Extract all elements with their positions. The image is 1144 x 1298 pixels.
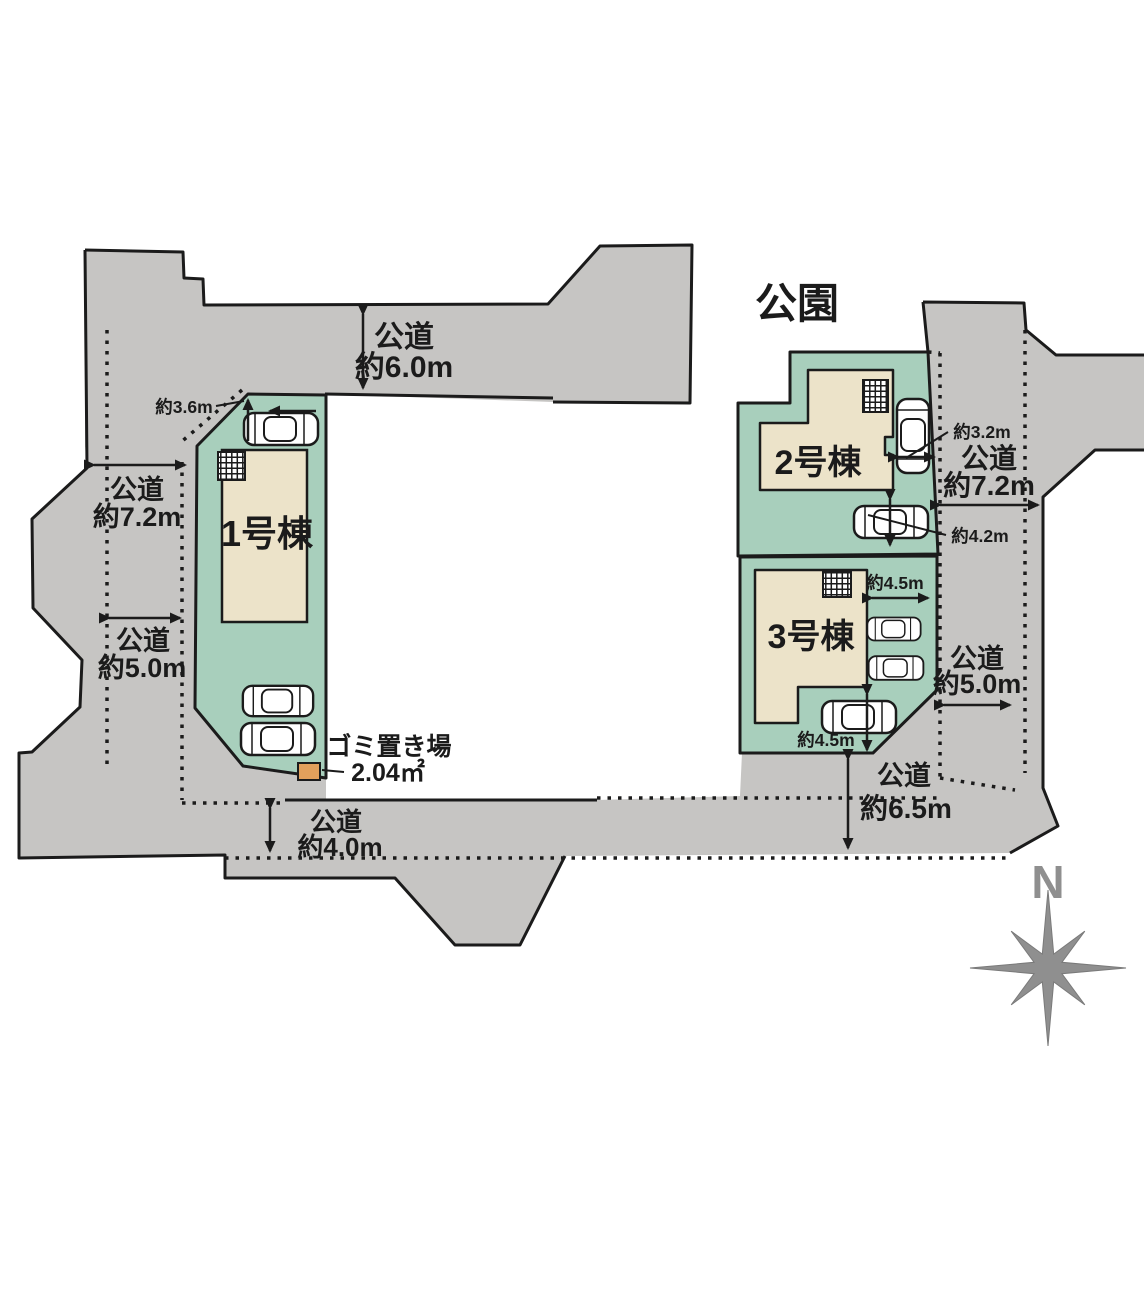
- lot3-parking-width-bottom-dim: 約4.5m: [797, 730, 854, 750]
- road-bottom-right-width: 約6.5m: [860, 792, 952, 824]
- road-left-lower-width: 約5.0m: [98, 652, 187, 683]
- garbage-area: 2.04㎡: [351, 758, 425, 787]
- road-right-lower-width: 約5.0m: [933, 668, 1022, 699]
- road-top-width: 約6.0m: [355, 351, 453, 384]
- lot1-frontage-dim: 約3.6m: [155, 397, 212, 417]
- road-bottom-width: 約4.0m: [297, 832, 382, 862]
- car-icon: [822, 701, 896, 733]
- hatch-grid-icon: [823, 572, 851, 597]
- car-icon: [243, 686, 313, 716]
- road-bottom-right-name: 公道: [877, 760, 931, 791]
- site-plan: N 公園 公道 約6.0m 公道 約7.2m 公道 約5.0m 公道 約7.2m…: [0, 0, 1144, 1298]
- site-plan-canvas: N 公園 公道 約6.0m 公道 約7.2m 公道 約5.0m 公道 約7.2m…: [0, 0, 1144, 1298]
- road-top-name: 公道: [374, 321, 434, 354]
- hatch-grid-icon: [863, 380, 888, 412]
- car-icon: [869, 656, 924, 680]
- road-left-upper-width: 約7.2m: [93, 501, 182, 532]
- park-label: 公園: [755, 280, 839, 327]
- compass-rose-icon: [970, 890, 1126, 1046]
- hatch-grid-icon: [218, 452, 245, 480]
- road-left-lower-name: 公道: [116, 625, 170, 656]
- road-left-upper-name: 公道: [110, 474, 164, 505]
- car-icon: [241, 723, 315, 755]
- road-right-upper-width: 約7.2m: [943, 469, 1035, 501]
- garbage-box: [298, 763, 320, 780]
- compass-north-label: N: [1031, 856, 1064, 908]
- lot3-parking-width-top-dim: 約4.5m: [866, 573, 923, 593]
- lot2-label: 2号棟: [775, 444, 863, 482]
- car-icon: [244, 413, 318, 445]
- lot3-label: 3号棟: [768, 618, 856, 656]
- lot2-parking-depth-dim: 約4.2m: [951, 526, 1008, 546]
- car-icon: [897, 399, 929, 473]
- car-icon: [867, 617, 920, 640]
- garbage-label: ゴミ置き場: [326, 732, 451, 761]
- lot2-parking-width-dim: 約3.2m: [953, 422, 1010, 442]
- lot1-label: 1号棟: [221, 513, 314, 554]
